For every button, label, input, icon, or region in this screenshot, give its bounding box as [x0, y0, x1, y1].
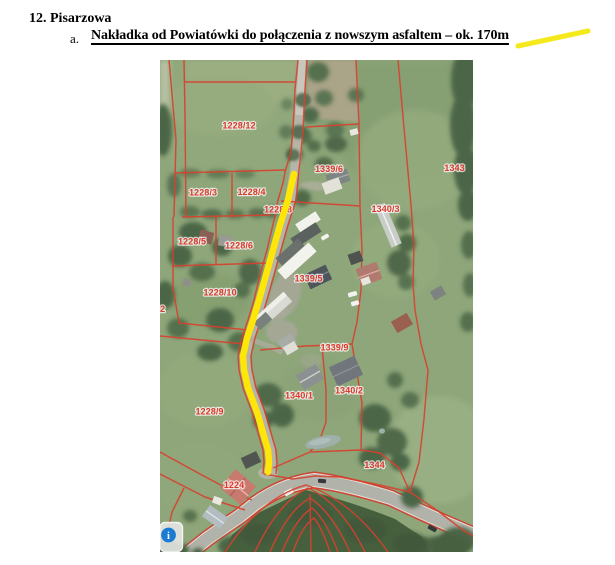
svg-text:2: 2 — [160, 304, 165, 314]
svg-text:1228/9: 1228/9 — [195, 407, 223, 417]
svg-text:1224: 1224 — [224, 480, 245, 490]
svg-text:1228/3: 1228/3 — [189, 188, 217, 198]
svg-text:1228/6: 1228/6 — [225, 241, 253, 251]
svg-text:1340/3: 1340/3 — [371, 204, 399, 214]
svg-text:1340/1: 1340/1 — [285, 391, 313, 401]
svg-text:1340/2: 1340/2 — [335, 386, 363, 396]
svg-text:1228/4: 1228/4 — [237, 187, 266, 197]
svg-text:1339/5: 1339/5 — [294, 274, 322, 284]
svg-text:i: i — [167, 531, 170, 542]
svg-text:1228/12: 1228/12 — [222, 121, 255, 131]
svg-text:1344: 1344 — [364, 460, 385, 470]
svg-text:1228/5: 1228/5 — [178, 237, 206, 247]
svg-text:1339/6: 1339/6 — [315, 164, 343, 174]
svg-text:1343: 1343 — [444, 163, 464, 173]
svg-text:1228/10: 1228/10 — [203, 288, 236, 298]
svg-text:1339/9: 1339/9 — [320, 343, 348, 353]
